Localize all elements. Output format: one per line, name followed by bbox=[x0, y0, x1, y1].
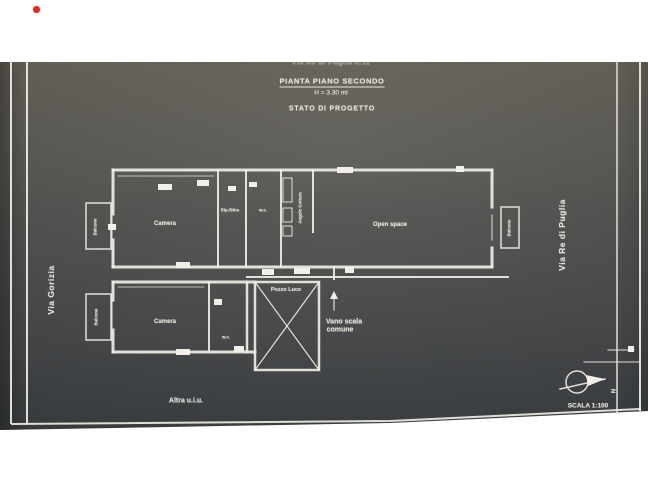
sheet-frame-border bbox=[11, 62, 640, 424]
window-door-marks-upper bbox=[108, 166, 464, 268]
room-label-camera-bottom: Camera bbox=[154, 319, 176, 325]
address-line: Via Re di Puglia n.11 bbox=[292, 60, 370, 67]
room-label-vano-scala-line1: Vano scala bbox=[326, 319, 362, 326]
room-label-rip-stira: Rip./Stira bbox=[221, 208, 239, 213]
room-label-pozzo-luce: Pozzo Luce bbox=[271, 287, 301, 293]
room-label-wc-bottom: w.c. bbox=[222, 335, 230, 340]
corridor-walls bbox=[247, 267, 508, 279]
label-altra-uiu: Altra u.i.u. bbox=[169, 398, 203, 405]
height-note: H = 3.30 ml bbox=[314, 90, 347, 97]
room-label-angolo-cottura: Angolo Cottura bbox=[298, 192, 303, 223]
screenshot-root: Via Re di Puglia n.11 PIANTA PIANO SECON… bbox=[0, 0, 648, 492]
room-label-vano-scala-line2: comune bbox=[327, 327, 354, 334]
plan-title: PIANTA PIANO SECONDO bbox=[280, 77, 385, 86]
room-label-balcone-right: Balcone bbox=[507, 220, 512, 237]
room-label-balcone-top-left: Balcone bbox=[93, 219, 98, 236]
north-letter: N bbox=[609, 389, 615, 393]
room-label-balcone-bottom-left: Balcone bbox=[94, 309, 99, 326]
stair-arrow-icon bbox=[330, 291, 338, 310]
room-label-wc-top: w.c. bbox=[259, 208, 267, 213]
street-label-via-gorizia: Via Gorizia bbox=[46, 265, 56, 314]
plan-title-text: PIANTA PIANO SECONDO bbox=[280, 77, 385, 88]
room-label-camera-top: Camera bbox=[154, 221, 176, 227]
apartment-walls-lower bbox=[112, 282, 255, 355]
room-label-open-space: Open space bbox=[373, 222, 407, 228]
plan-photo-content: Via Re di Puglia n.11 PIANTA PIANO SECON… bbox=[0, 0, 648, 492]
scale-label: SCALA 1:100 bbox=[568, 403, 609, 410]
floorplan-linework bbox=[0, 0, 648, 492]
pozzo-luce-hatch bbox=[255, 282, 319, 370]
project-status: STATO DI PROGETTO bbox=[289, 106, 375, 113]
street-label-via-re-di-puglia: Via Re di Puglia bbox=[557, 199, 567, 271]
north-arrow-icon bbox=[560, 371, 605, 393]
red-marker-dot bbox=[33, 6, 40, 13]
